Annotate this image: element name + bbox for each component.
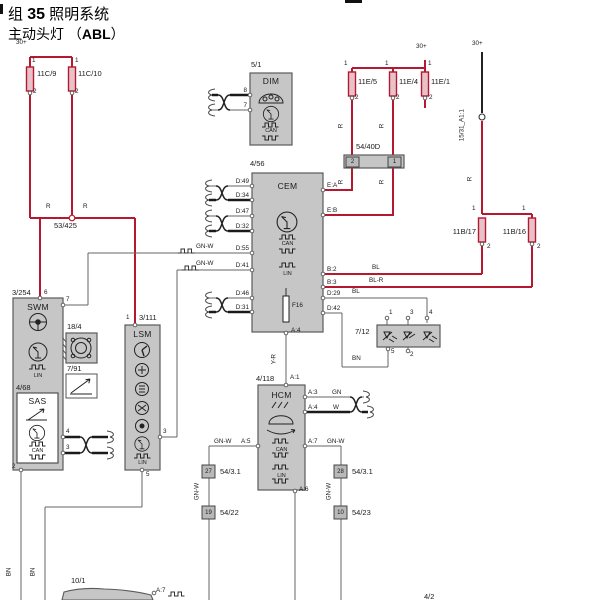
wire-b3-blr bbox=[323, 242, 532, 287]
cem-pin-d32: D:32 bbox=[236, 224, 249, 230]
connector-label-5431-right: 54/3.1 bbox=[352, 468, 373, 476]
hcm-pin-a4: A:4 bbox=[308, 405, 317, 411]
pin-label: 2 bbox=[410, 352, 414, 358]
dim-name: DIM bbox=[250, 77, 292, 86]
wiring-diagram-page: 组 35 照明系统 主动头灯 （ABL） 30+ 1 1 11C/9 11C/1… bbox=[0, 0, 605, 600]
wire-b2-bl bbox=[323, 242, 482, 274]
cem-name: CEM bbox=[252, 182, 323, 191]
cell-number-10: 10 bbox=[334, 510, 347, 516]
pin-label: 1 bbox=[389, 310, 393, 316]
pin-label: 8 bbox=[243, 88, 247, 94]
wire-color-bn: BN bbox=[31, 568, 37, 577]
hcm-ref: 4/118 bbox=[256, 375, 274, 383]
fuse-label-11e4: 11E/4 bbox=[399, 78, 418, 86]
pin-label: 4 bbox=[66, 429, 70, 435]
connector-label-5440d: 54/40D bbox=[356, 143, 380, 151]
label-30plus-left: 30+ bbox=[16, 40, 27, 46]
sas-name: SAS bbox=[17, 397, 58, 406]
pin-label: 2 bbox=[487, 244, 491, 250]
hcm-lin-label: LIN bbox=[258, 474, 305, 480]
wire-11c-down bbox=[30, 91, 72, 218]
pin-label: 2 bbox=[396, 95, 400, 101]
fuse-label-11e5: 11E/5 bbox=[358, 78, 377, 86]
lsm-box bbox=[125, 325, 160, 470]
cell-number: 2 bbox=[346, 159, 359, 165]
cem-pin-b3: B:3 bbox=[327, 280, 336, 286]
wire-color-bl: BL bbox=[372, 265, 380, 271]
swm-ref: 3/254 bbox=[12, 289, 31, 297]
pin-label: 7 bbox=[66, 297, 70, 303]
wire-color-w: W bbox=[333, 405, 339, 411]
wire-color-r: R bbox=[339, 124, 345, 129]
cem-ref: 4/56 bbox=[250, 160, 265, 168]
wire-color-yr: Y-R bbox=[272, 354, 278, 364]
wire-color-gn: GN bbox=[332, 390, 341, 396]
wire-color-bn: BN bbox=[7, 568, 13, 577]
label-30plus-right: 30+ bbox=[472, 41, 483, 47]
fuse-11b16 bbox=[529, 218, 536, 242]
cem-pin-d49: D:49 bbox=[236, 179, 249, 185]
wire-color-r: R bbox=[380, 124, 386, 129]
cell-number-27: 27 bbox=[202, 469, 215, 475]
wire-color-blr: BL-R bbox=[369, 278, 383, 284]
cem-pin-d41: D:41 bbox=[236, 263, 249, 269]
console-label-101: 10/1 bbox=[71, 577, 86, 585]
wire-can-thin bbox=[209, 186, 252, 298]
hcm-pin-a6: A:6 bbox=[299, 487, 308, 493]
sas-ref: 4/68 bbox=[16, 384, 31, 392]
pin-label: 5 bbox=[391, 349, 395, 355]
connector-label-5431: 54/3.1 bbox=[220, 468, 241, 476]
label-30plus-mid: 30+ bbox=[416, 44, 427, 50]
pin-label: 1 bbox=[344, 61, 348, 67]
wire-30plus-left-bus bbox=[30, 57, 72, 67]
wire-color-gnw: GN-W bbox=[327, 439, 345, 445]
pin-label: 6 bbox=[44, 290, 48, 296]
splice-15-31 bbox=[479, 114, 485, 120]
connector-label-5423: 54/23 bbox=[352, 509, 371, 517]
lamp-unit-label: 7/12 bbox=[355, 328, 370, 336]
wiring-diagram-canvas bbox=[0, 0, 605, 600]
wire-color-gnw: GN-W bbox=[196, 244, 214, 250]
console-10-1-shape bbox=[62, 588, 153, 600]
fuse-label-11b16: 11B/16 bbox=[503, 228, 526, 236]
cell-number-28: 28 bbox=[334, 469, 347, 475]
pin-label: 1 bbox=[428, 61, 432, 67]
cem-pin-ea: E:A bbox=[327, 183, 337, 189]
pulse-glyphs bbox=[168, 249, 199, 596]
fuse-11e4 bbox=[390, 72, 397, 96]
wire-1531-down bbox=[482, 121, 532, 218]
lsm-ref: 3/111 bbox=[139, 314, 157, 322]
cem-pin-b2: B:2 bbox=[327, 267, 336, 273]
pin-label: 1 bbox=[75, 58, 79, 64]
left-edge-mark bbox=[0, 4, 3, 14]
fuse-11e5 bbox=[349, 72, 356, 96]
splice-53-425 bbox=[69, 215, 75, 221]
pin-label: 3 bbox=[163, 429, 167, 435]
hcm-pin-a3: A:3 bbox=[308, 390, 317, 396]
wire-color-r: R bbox=[380, 180, 386, 185]
pin-label: 7 bbox=[243, 103, 247, 109]
pin-label: 2 bbox=[537, 244, 541, 250]
connector-label-5422: 54/22 bbox=[220, 509, 239, 517]
cem-f16-label: F16 bbox=[292, 303, 303, 309]
cem-pin-d55: D:55 bbox=[236, 246, 249, 252]
cem-can-label: CAN bbox=[252, 242, 323, 248]
cem-pin-d47: D:47 bbox=[236, 209, 249, 215]
pin-label: 1 bbox=[385, 61, 389, 67]
cutoff-ref-label: 4/2 bbox=[424, 593, 434, 600]
wire-color-r: R bbox=[46, 204, 51, 210]
lsm-lin-label: LIN bbox=[125, 461, 160, 467]
wire-color-bn: BN bbox=[352, 356, 361, 362]
cem-lin-label: LIN bbox=[252, 272, 323, 278]
page-title: 组 35 照明系统 bbox=[8, 3, 109, 24]
clockspring-label: 18/4 bbox=[67, 323, 82, 331]
pin-label: 1 bbox=[472, 206, 476, 212]
hcm-name: HCM bbox=[258, 391, 305, 400]
pin-label: 2 bbox=[12, 464, 16, 470]
subtitle-paren-open: （ bbox=[68, 26, 82, 42]
top-edge-mark bbox=[345, 0, 362, 3]
cell-number-19: 19 bbox=[202, 510, 215, 516]
pin-label: 1 bbox=[126, 315, 130, 321]
lsm-name: LSM bbox=[125, 330, 160, 339]
fuse-11b17 bbox=[479, 218, 486, 242]
wire-color-gnw: GN-W bbox=[195, 483, 201, 501]
wire-color-r: R bbox=[83, 204, 88, 210]
fuse-label-11c9: 11C/9 bbox=[37, 70, 56, 78]
hcm-can-label: CAN bbox=[258, 448, 305, 454]
pin-label: 2 bbox=[355, 95, 359, 101]
dim-ref: 5/1 bbox=[251, 61, 261, 69]
console-pin-a7: A:7 bbox=[156, 588, 165, 594]
cem-pin-d31: D:31 bbox=[236, 305, 249, 311]
wire-lsm-bn bbox=[45, 472, 142, 600]
fuse-11e1 bbox=[422, 72, 429, 96]
cem-pin-d42: D:42 bbox=[327, 306, 340, 312]
subtitle-abl: ABL bbox=[82, 26, 111, 42]
title-system-word: 照明系统 bbox=[49, 6, 109, 23]
fuse-label-11b17: 11B/17 bbox=[453, 228, 476, 236]
wire-color-bl: BL bbox=[352, 289, 360, 295]
pin-label: 1 bbox=[32, 58, 36, 64]
hcm-pin-a5: A:5 bbox=[241, 439, 250, 445]
wire-color-r: R bbox=[339, 180, 345, 185]
rheostat-label: 7/91 bbox=[67, 365, 82, 373]
title-group-word: 组 bbox=[8, 6, 23, 23]
hcm-pin-a7: A:7 bbox=[308, 439, 317, 445]
cell-number: 1 bbox=[388, 159, 401, 165]
pin-label: 3 bbox=[66, 445, 70, 451]
f16-fuse bbox=[283, 296, 289, 322]
pin-label: 2 bbox=[75, 89, 79, 95]
cem-pin-a4: A:4 bbox=[291, 328, 300, 334]
pin-label: 3 bbox=[410, 310, 414, 316]
wire-color-gnw: GN-W bbox=[214, 439, 232, 445]
cem-pin-d46: D:46 bbox=[236, 291, 249, 297]
cem-pin-eb: E:B bbox=[327, 208, 337, 214]
hcm-pin-a1: A:1 bbox=[290, 375, 299, 381]
wire-color-r: R bbox=[468, 177, 474, 182]
pin-label: 1 bbox=[522, 206, 526, 212]
pin-label: 5 bbox=[146, 472, 150, 478]
wire-color-gnw: GN-W bbox=[196, 261, 214, 267]
title-group-number: 35 bbox=[27, 6, 45, 23]
splice-label-53-425: 53/425 bbox=[54, 222, 77, 230]
splice-label-1531: 15/31_A1:1 bbox=[460, 109, 466, 141]
pin-label: 2 bbox=[429, 95, 433, 101]
pin-label: 4 bbox=[429, 310, 433, 316]
dim-bus-label: CAN bbox=[250, 129, 292, 135]
wire-color-gnw: GN-W bbox=[327, 483, 333, 501]
cem-pin-d29: D:29 bbox=[327, 291, 340, 297]
subtitle-paren-close: ） bbox=[111, 26, 125, 42]
cem-pin-d34: D:34 bbox=[236, 193, 249, 199]
fuse-label-11e1: 11E/1 bbox=[431, 78, 450, 86]
pin-label: 2 bbox=[33, 89, 37, 95]
swm-lin-label: LIN bbox=[13, 374, 63, 380]
swm-name: SWM bbox=[13, 303, 63, 312]
fuse-label-11c10: 11C/10 bbox=[78, 70, 102, 78]
sas-can-label: CAN bbox=[17, 449, 58, 455]
